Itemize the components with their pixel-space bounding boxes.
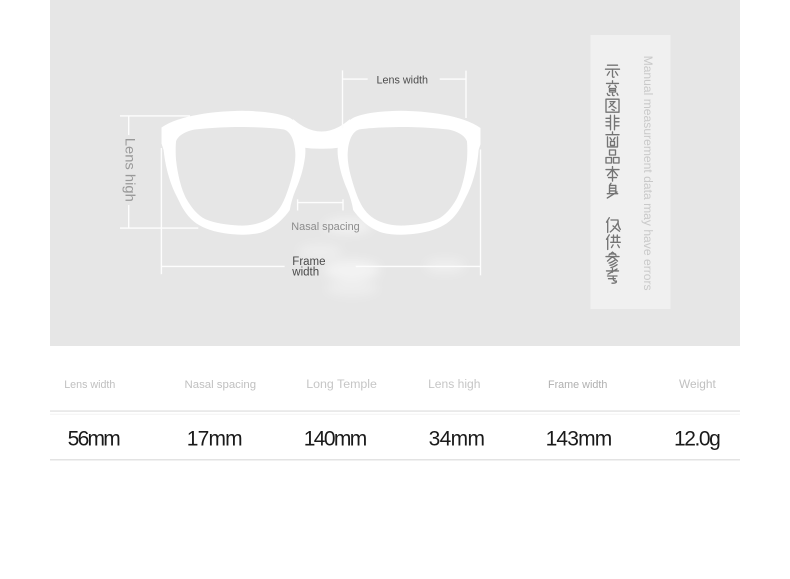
svg-text:12.0g: 12.0g [674,427,721,450]
svg-text:width: width [291,267,319,279]
svg-text:Lens width: Lens width [377,74,429,86]
svg-text:Manual measurement data may ha: Manual measurement data may have errors [641,56,655,291]
svg-text:140mm: 140mm [304,427,368,450]
svg-text:Long Temple: Long Temple [306,377,377,391]
svg-text:34mm: 34mm [429,427,485,450]
svg-text:17mm: 17mm [187,427,243,450]
svg-text:Frame width: Frame width [548,379,607,391]
svg-text:Lens high: Lens high [428,377,480,391]
svg-text:Lens width: Lens width [64,379,115,391]
svg-text:Weight: Weight [679,377,716,391]
svg-text:143mm: 143mm [546,427,613,450]
svg-text:Lens high: Lens high [123,138,138,202]
svg-text:56mm: 56mm [68,427,121,450]
svg-text:Nasal spacing: Nasal spacing [185,379,257,391]
svg-text:Nasal spacing: Nasal spacing [291,221,359,233]
